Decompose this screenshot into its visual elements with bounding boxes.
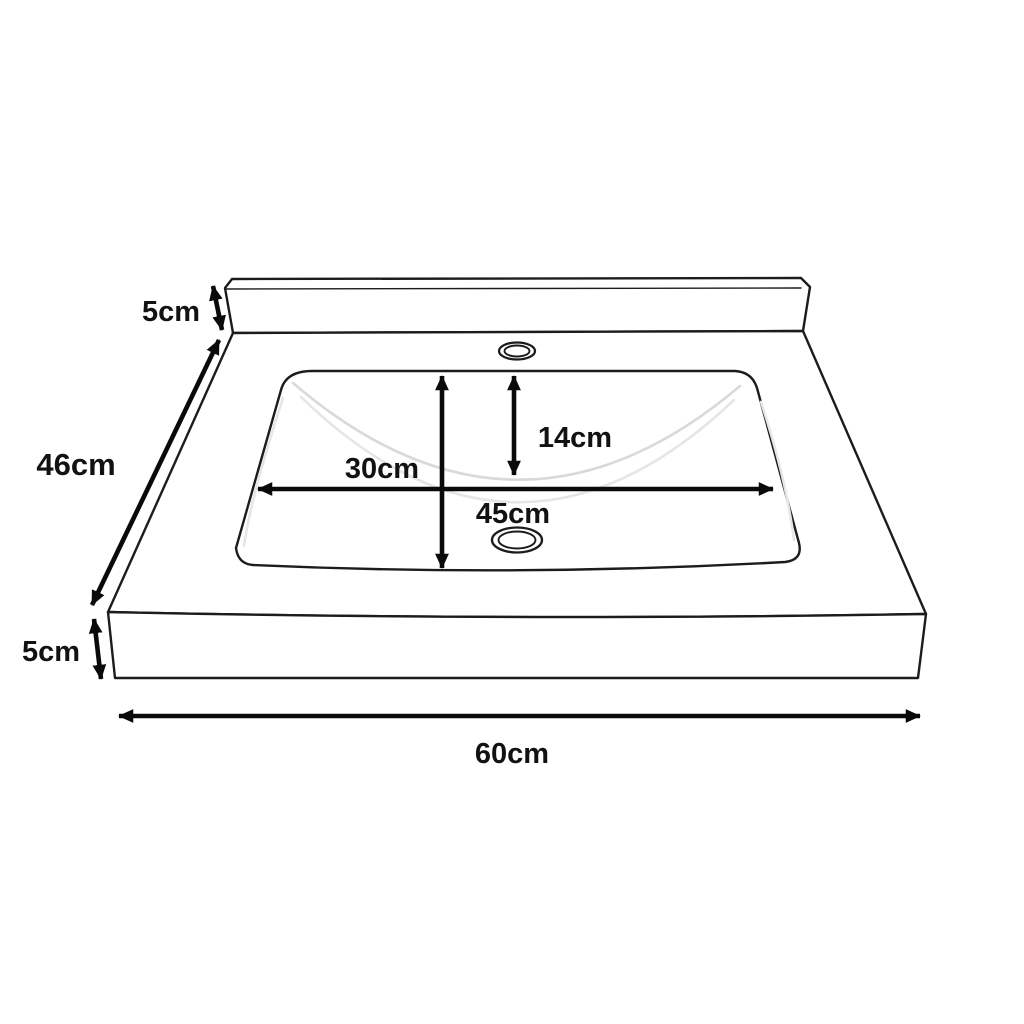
label-backsplash-height: 5cm xyxy=(142,296,200,328)
faucet-hole-inner xyxy=(505,346,530,357)
label-apron-thickness: 5cm xyxy=(22,636,80,668)
label-basin-bowl-depth: 14cm xyxy=(538,422,612,454)
diagram-drawing: 5cm 46cm 5cm 60cm 30cm 14cm 45cm xyxy=(0,0,1024,1024)
label-overall-width: 60cm xyxy=(475,738,549,770)
arrow-backsplash-height-5cm xyxy=(213,286,222,330)
drain-hole-inner xyxy=(499,532,536,549)
backsplash-outline xyxy=(225,278,810,333)
front-apron-outline xyxy=(108,612,926,678)
label-basin-inner-width: 45cm xyxy=(476,498,550,530)
backsplash-top-band-line xyxy=(226,288,801,289)
label-basin-inner-depth: 30cm xyxy=(345,453,419,485)
sink-dimension-diagram: 5cm 46cm 5cm 60cm 30cm 14cm 45cm xyxy=(0,0,1024,1024)
sink-body xyxy=(108,278,926,678)
arrow-apron-thickness-5cm xyxy=(94,619,101,679)
label-depth: 46cm xyxy=(36,447,115,482)
